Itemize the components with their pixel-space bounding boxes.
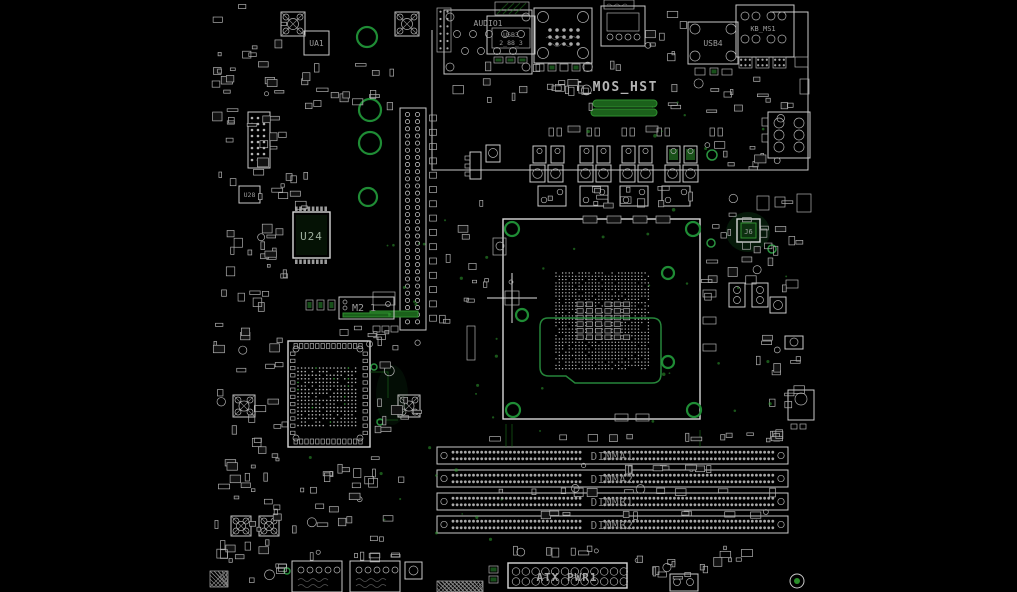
vrm-mosfet-row	[465, 126, 723, 206]
dimm-pin	[517, 526, 520, 529]
dimm-pin	[554, 503, 557, 506]
dimm-pin	[739, 503, 742, 506]
socket-pin	[605, 299, 606, 300]
socket-pin	[635, 361, 636, 362]
socket-pin	[615, 279, 616, 280]
dimm-pin	[566, 451, 569, 454]
via	[661, 130, 663, 132]
dimm-pin	[472, 474, 475, 477]
dimm-pin	[505, 503, 508, 506]
socket-pin	[582, 286, 583, 287]
socket-pin	[595, 352, 596, 353]
smd-part	[673, 576, 682, 579]
smd-part	[230, 179, 236, 186]
smd-part	[729, 558, 732, 562]
usb-lan-stack-connector[interactable]	[534, 8, 592, 71]
via	[413, 300, 416, 303]
dimm-pin	[689, 474, 692, 477]
via	[344, 378, 346, 380]
socket-pin	[648, 295, 649, 296]
socket-pin	[615, 286, 616, 287]
socket-pin	[562, 355, 563, 356]
dimm-pin	[661, 520, 664, 523]
dimm-pin	[550, 451, 553, 454]
smd-part	[349, 493, 360, 499]
socket-pin	[582, 365, 583, 366]
ps2-kb-ms-connector[interactable]: KB_MS1	[736, 5, 794, 68]
dimm-pin	[771, 457, 774, 460]
inductor	[281, 12, 305, 36]
socket-pin	[608, 279, 609, 280]
socket-pin	[569, 305, 570, 306]
dimm-pin	[735, 520, 738, 523]
dimm-pin	[554, 451, 557, 454]
smd-part	[248, 250, 252, 255]
socket-pin	[588, 282, 589, 283]
via	[500, 498, 502, 500]
via	[315, 407, 317, 409]
smd-part	[721, 233, 726, 238]
dimm-pin	[710, 474, 713, 477]
via	[308, 392, 310, 394]
via	[304, 367, 306, 369]
slot-pin	[415, 227, 419, 231]
cpu-socket[interactable]	[467, 216, 716, 421]
slot-pin	[405, 270, 409, 274]
dimm-pin	[694, 503, 697, 506]
smd-part	[249, 53, 256, 57]
socket-pin	[562, 325, 563, 326]
socket-pin	[605, 286, 606, 287]
smd-part	[547, 548, 552, 556]
socket-pin	[585, 276, 586, 277]
socket-pin	[618, 355, 619, 356]
smd-part	[373, 469, 376, 477]
socket-pin	[565, 338, 566, 339]
dimm-pin	[534, 520, 537, 523]
socket-pin	[578, 276, 579, 277]
smd-part	[232, 426, 236, 435]
via	[355, 367, 357, 369]
dimm-pin	[468, 480, 471, 483]
socket-pin	[615, 352, 616, 353]
socket-pin	[618, 342, 619, 343]
dimm-pin	[648, 451, 651, 454]
dimm-pin	[706, 497, 709, 500]
dimm-pin	[747, 480, 750, 483]
via	[304, 403, 306, 405]
socket-pin	[644, 352, 645, 353]
dimm-pin	[739, 520, 742, 523]
socket-pin	[578, 289, 579, 290]
via	[326, 385, 328, 387]
dimm-pin	[665, 526, 668, 529]
dimm-pin	[739, 451, 742, 454]
via	[348, 385, 350, 387]
chip-u24[interactable]: U24	[293, 207, 330, 265]
slot-pin	[415, 120, 419, 124]
via	[333, 400, 335, 402]
dimm-pin	[550, 497, 553, 500]
dimm-pin	[484, 474, 487, 477]
slot-pin	[415, 305, 419, 309]
via	[297, 400, 299, 402]
chip-j6[interactable]: J6	[726, 212, 770, 252]
socket-pin	[621, 342, 622, 343]
socket-pin	[631, 299, 632, 300]
via	[308, 418, 310, 420]
via	[315, 425, 317, 427]
dimm-pin	[484, 451, 487, 454]
via	[672, 208, 676, 212]
pad	[251, 153, 254, 156]
via	[766, 360, 769, 363]
dimm-pin	[550, 503, 553, 506]
socket-pin	[641, 322, 642, 323]
socket-pin	[611, 286, 612, 287]
dimm-pin	[530, 451, 533, 454]
lan-connector[interactable]	[601, 0, 645, 46]
via	[648, 284, 650, 286]
smd-part	[763, 335, 773, 340]
pad	[363, 417, 368, 420]
smd-part	[227, 463, 237, 471]
socket-pin	[562, 368, 563, 369]
atx-pin	[512, 568, 520, 576]
dimm-pin	[648, 497, 651, 500]
socket-pin	[572, 302, 573, 303]
smd-part	[241, 328, 249, 336]
dimm-pin	[747, 474, 750, 477]
socket-pin	[585, 348, 586, 349]
socket-pin	[575, 315, 576, 316]
smd-part	[257, 527, 261, 531]
socket-pin	[631, 305, 632, 306]
dimm-pin	[677, 497, 680, 500]
via	[322, 378, 324, 380]
dimm-pin	[452, 497, 455, 500]
dimm-pin	[743, 457, 746, 460]
pad	[337, 439, 340, 444]
dimm-pin	[735, 503, 738, 506]
socket-pin	[648, 335, 649, 336]
socket-pin	[578, 358, 579, 359]
socket-pin	[555, 348, 556, 349]
socket-pin	[631, 276, 632, 277]
dimm-pin	[677, 503, 680, 506]
socket-pin	[565, 332, 566, 333]
via	[319, 400, 321, 402]
pad	[639, 189, 645, 195]
pin	[576, 28, 580, 32]
socket-pin	[572, 325, 573, 326]
smd-part	[212, 81, 220, 87]
pin	[316, 207, 319, 212]
socket-pin	[638, 328, 639, 329]
socket-pin	[608, 358, 609, 359]
m2-slot[interactable]: M2_1	[306, 297, 394, 319]
socket-pin	[625, 368, 626, 369]
pad	[430, 244, 437, 250]
dimm-pin	[722, 497, 725, 500]
pad	[291, 431, 296, 434]
via	[351, 421, 353, 423]
dimm-a1-label: DIMMA1	[591, 450, 634, 463]
dimm-pin	[759, 520, 762, 523]
socket-pin	[572, 286, 573, 287]
dimm-pin	[452, 526, 455, 529]
via	[326, 367, 328, 369]
dimm-pin	[644, 451, 647, 454]
dimm-pin	[460, 497, 463, 500]
socket-pin	[592, 352, 593, 353]
dimm-pin	[726, 520, 729, 523]
socket-pin	[644, 295, 645, 296]
dimm-pin	[505, 497, 508, 500]
dimm-pin	[489, 474, 492, 477]
smd-part	[707, 260, 718, 263]
pin	[569, 35, 573, 39]
dimm-pin	[726, 451, 729, 454]
capacitor	[596, 322, 602, 327]
socket-pin	[595, 286, 596, 287]
socket-pin	[555, 322, 556, 323]
dimm-pin	[739, 497, 742, 500]
capacitor	[718, 128, 723, 136]
socket-pin	[559, 352, 560, 353]
usb4-label: USB4	[703, 39, 722, 48]
socket-pin	[648, 292, 649, 293]
slot-pin	[415, 263, 419, 267]
dimm-pin	[735, 480, 738, 483]
smd-part	[310, 487, 316, 493]
dimm-pin	[456, 497, 459, 500]
socket-pin	[621, 276, 622, 277]
smd-part	[787, 103, 793, 107]
dimm-pin	[558, 457, 561, 460]
slot-pin	[405, 263, 409, 267]
pad	[263, 135, 266, 138]
socket-pin	[635, 289, 636, 290]
socket-pin	[602, 361, 603, 362]
socket-pin	[635, 276, 636, 277]
dimm-pin	[517, 457, 520, 460]
dimm-pin	[698, 451, 701, 454]
via	[322, 407, 324, 409]
smd-part	[663, 563, 671, 571]
audio-label: AUDIO1	[474, 19, 503, 28]
via	[312, 382, 314, 384]
pin	[555, 35, 559, 39]
dimm-pin	[648, 526, 651, 529]
dimm-pin	[497, 497, 500, 500]
socket-pin	[638, 355, 639, 356]
dimm-pin	[509, 520, 512, 523]
dimm-b2-label: DIMMB2	[591, 519, 634, 532]
smd-part	[259, 547, 269, 554]
socket-pin	[644, 338, 645, 339]
socket-pin	[569, 365, 570, 366]
via	[653, 134, 657, 138]
via	[344, 392, 346, 394]
socket-pin	[608, 355, 609, 356]
socket-pin	[559, 286, 560, 287]
usb3-connector[interactable]: USB3 2_88_3	[487, 2, 535, 63]
socket-pin	[644, 315, 645, 316]
dimm-pin	[685, 526, 688, 529]
smd-part	[270, 146, 277, 149]
via	[297, 378, 299, 380]
via	[333, 378, 335, 380]
socket-pin	[628, 292, 629, 293]
smd-part	[234, 238, 242, 247]
capacitor	[605, 322, 611, 327]
atx-power-connector[interactable]: ATX PWR1	[489, 563, 628, 588]
socket-pin	[595, 361, 596, 362]
socket-pin	[605, 282, 606, 283]
socket-pin	[648, 305, 649, 306]
socket-pin	[565, 328, 566, 329]
dimm-pin	[694, 451, 697, 454]
pin	[774, 59, 776, 61]
via	[333, 421, 335, 423]
socket-pin	[638, 358, 639, 359]
socket-pin	[631, 282, 632, 283]
via	[309, 456, 312, 459]
dimm-pin	[501, 480, 504, 483]
socket-pin	[565, 365, 566, 366]
via	[319, 371, 321, 373]
via	[475, 393, 477, 395]
dimm-pin	[747, 497, 750, 500]
dimm-pin	[767, 520, 770, 523]
dimm-pin	[665, 520, 668, 523]
socket-pin	[562, 322, 563, 323]
smd-part	[672, 561, 675, 567]
smd-part	[541, 511, 550, 518]
dimm-pin	[673, 474, 676, 477]
via	[297, 374, 299, 376]
pad	[363, 395, 368, 398]
via	[351, 425, 353, 427]
via	[333, 392, 335, 394]
smd-part	[290, 191, 300, 196]
usb4-connector[interactable]: USB4	[688, 22, 738, 75]
socket-pin	[572, 335, 573, 336]
via	[297, 414, 299, 416]
socket-pin	[588, 286, 589, 287]
dimm-pin	[521, 497, 524, 500]
slot-pin	[405, 234, 409, 238]
socket-pin	[605, 352, 606, 353]
dimm-pin	[464, 497, 467, 500]
socket-pin	[611, 276, 612, 277]
pad	[643, 148, 648, 153]
pin	[562, 42, 566, 46]
dimm-pin	[726, 480, 729, 483]
via	[355, 425, 357, 427]
led	[794, 578, 800, 584]
pad	[363, 352, 368, 355]
pin	[548, 35, 552, 39]
smd-part	[392, 553, 400, 557]
via	[322, 367, 324, 369]
smd-part	[728, 229, 731, 235]
socket-pin	[605, 368, 606, 369]
smd-part	[224, 90, 231, 93]
via	[312, 414, 314, 416]
pad	[430, 115, 437, 121]
socket-pin	[605, 292, 606, 293]
socket-pin	[562, 332, 563, 333]
socket-pin	[559, 289, 560, 290]
pin	[569, 28, 573, 32]
dimm-pin	[648, 520, 651, 523]
smd-part	[375, 426, 381, 432]
socket-pin	[625, 276, 626, 277]
pad	[291, 410, 296, 413]
smd-part	[277, 338, 282, 343]
dimm-pin	[673, 480, 676, 483]
smd-part	[548, 196, 552, 200]
dimm-pin	[694, 520, 697, 523]
via	[337, 407, 339, 409]
chip-u28[interactable]: U28	[239, 186, 260, 203]
dimm-pin	[743, 480, 746, 483]
slot-pin	[415, 127, 419, 131]
socket-pin	[595, 368, 596, 369]
socket-pin	[569, 358, 570, 359]
smd-part	[265, 570, 275, 580]
via	[333, 410, 335, 412]
socket-pin	[592, 355, 593, 356]
usb-header[interactable]	[350, 561, 400, 592]
mosfet	[596, 165, 611, 182]
socket-pin	[635, 312, 636, 313]
dimm-pin	[726, 497, 729, 500]
front-panel-header[interactable]	[292, 561, 342, 592]
atx-pin	[512, 578, 520, 586]
via	[301, 403, 303, 405]
smd-part	[658, 201, 663, 207]
via	[319, 414, 321, 416]
socket-pin	[569, 322, 570, 323]
smd-part	[250, 291, 260, 295]
smd-part	[314, 64, 319, 72]
dimm-pin	[685, 503, 688, 506]
pad	[665, 197, 671, 203]
slot-pin	[405, 162, 409, 166]
pad	[291, 352, 296, 355]
dimm-pin	[685, 497, 688, 500]
dimm-pin	[542, 526, 545, 529]
pin	[446, 25, 448, 27]
dimm-pin	[730, 526, 733, 529]
chip-ua1[interactable]: UA1	[304, 31, 329, 55]
dimm-pin	[460, 451, 463, 454]
via	[308, 389, 310, 391]
dimm-pin	[743, 497, 746, 500]
via	[333, 374, 335, 376]
socket-pin	[641, 335, 642, 336]
pad	[363, 374, 368, 377]
smd-part	[563, 512, 570, 515]
via	[686, 282, 688, 284]
socket-pin	[641, 295, 642, 296]
socket-pin	[628, 325, 629, 326]
via	[326, 400, 328, 402]
socket-pin	[608, 295, 609, 296]
